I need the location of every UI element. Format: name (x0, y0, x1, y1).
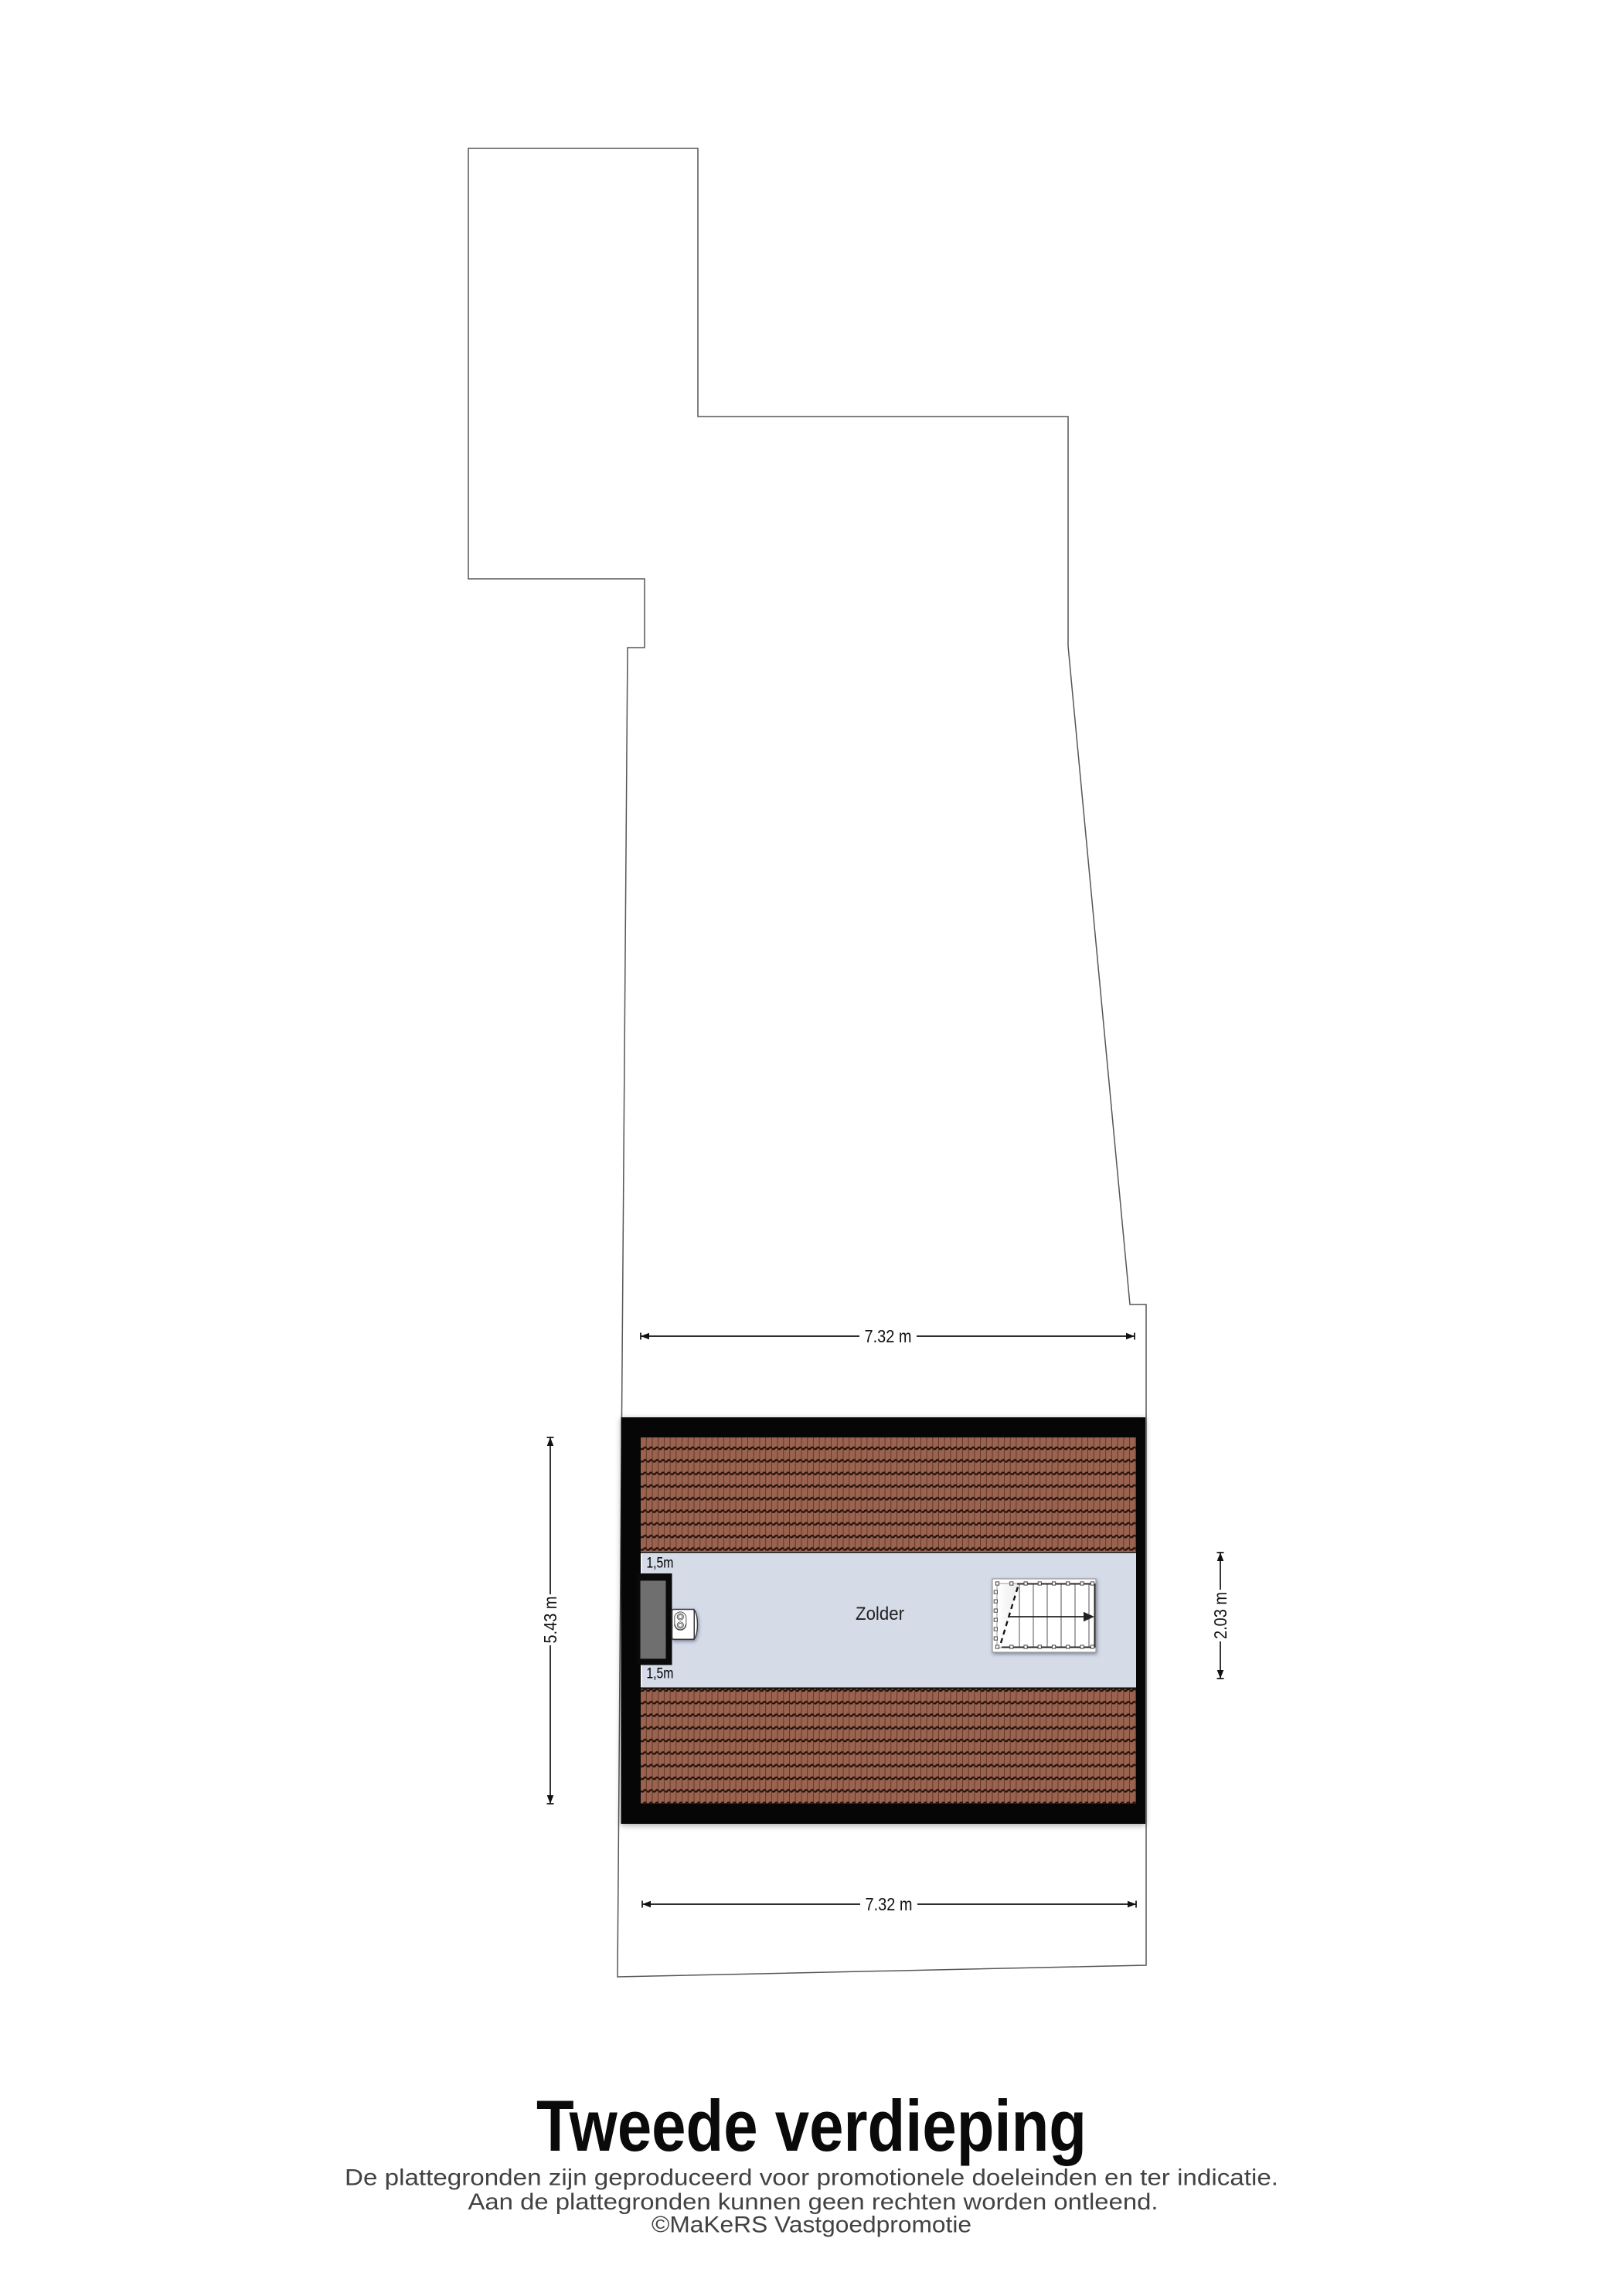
svg-text:Zolder: Zolder (856, 1604, 904, 1624)
svg-text:Aan de plattegronden kunnen ge: Aan de plattegronden kunnen geen rechten… (468, 2189, 1159, 2215)
svg-text:Tweede verdieping: Tweede verdieping (536, 2085, 1087, 2166)
svg-text:1,5m: 1,5m (646, 1554, 673, 1571)
svg-text:De plattegronden zijn geproduc: De plattegronden zijn geproduceerd voor … (345, 2165, 1278, 2191)
svg-text:2.03 m: 2.03 m (1210, 1592, 1230, 1639)
svg-text:1,5m: 1,5m (646, 1665, 673, 1682)
svg-text:5.43 m: 5.43 m (540, 1597, 560, 1644)
svg-text:7.32 m: 7.32 m (865, 1326, 912, 1346)
svg-text:©MaKeRS Vastgoedpromotie: ©MaKeRS Vastgoedpromotie (652, 2213, 971, 2238)
svg-text:7.32 m: 7.32 m (866, 1894, 913, 1914)
